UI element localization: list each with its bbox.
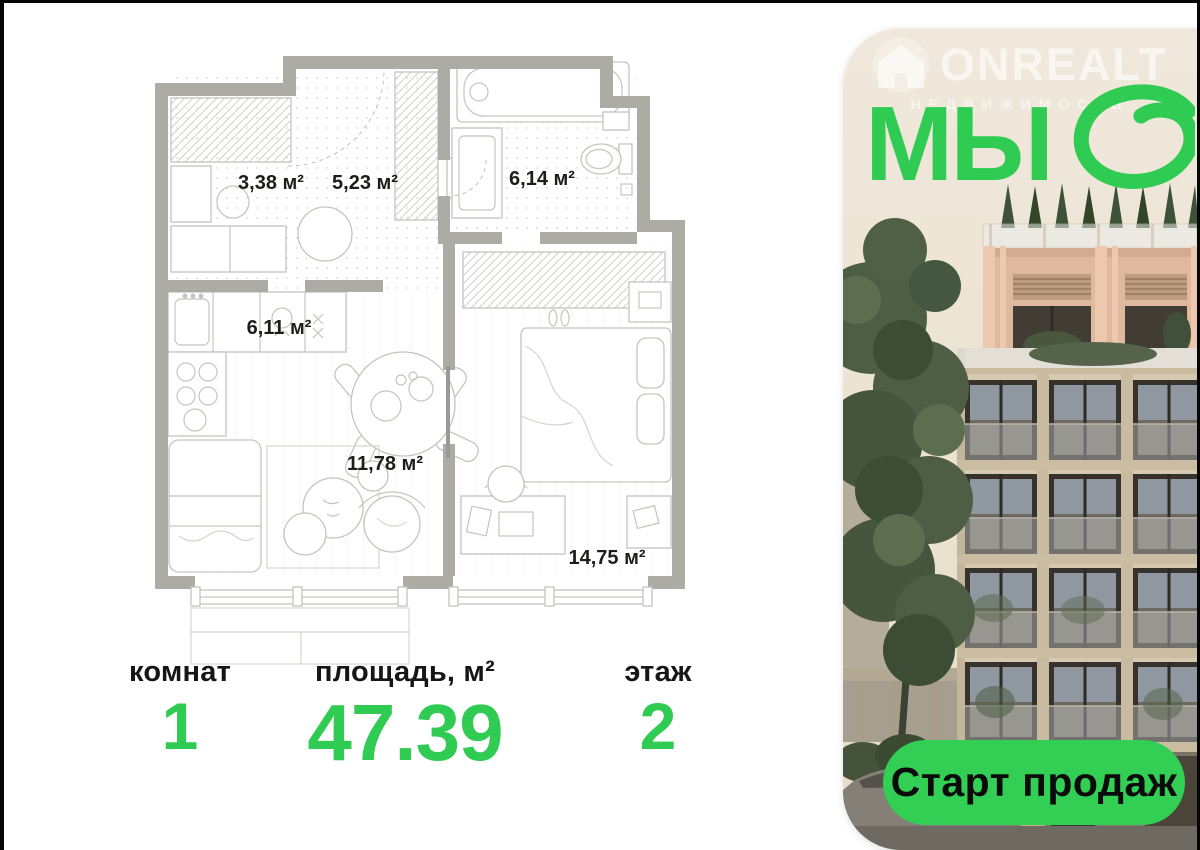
logo-letter-c-swoosh-icon bbox=[1077, 87, 1195, 187]
stats-row: комнат 1 площадь, м² 47.39 этаж 2 bbox=[0, 656, 843, 806]
corner-table bbox=[627, 496, 671, 548]
floor-stat: этаж 2 bbox=[588, 656, 728, 758]
area-stat: площадь, м² 47.39 bbox=[268, 656, 542, 771]
frame-border-left bbox=[0, 0, 4, 850]
stove bbox=[168, 352, 226, 436]
area-stat-value: 47.39 bbox=[268, 695, 542, 771]
start-sales-button[interactable]: Старт продаж bbox=[883, 740, 1185, 825]
project-logo: МЫ bbox=[865, 80, 1195, 210]
bed bbox=[521, 310, 671, 482]
floorplan: 3,38 м² 5,23 м² 6,14 м² 6,11 м² 11,78 м²… bbox=[155, 56, 685, 668]
room-area-label: 6,11 м² bbox=[247, 317, 312, 339]
area-stat-label: площадь, м² bbox=[268, 656, 542, 689]
rooms-stat-label: комнат bbox=[110, 656, 250, 689]
room-area-label: 11,78 м² bbox=[347, 453, 423, 475]
bathroom-vanity bbox=[452, 128, 502, 218]
promo-card: ONREALT НЕДВИЖИМОСТЬ МЫ Старт продаж bbox=[843, 28, 1197, 850]
sofa bbox=[169, 440, 261, 572]
room-area-label: 14,75 м² bbox=[568, 547, 645, 569]
bedroom-window bbox=[449, 587, 652, 606]
logo-letters: МЫ bbox=[865, 85, 1051, 203]
floor-stat-label: этаж bbox=[588, 656, 728, 689]
bedside-table bbox=[629, 282, 671, 322]
living-window bbox=[191, 587, 407, 606]
room-area-label: 5,23 м² bbox=[332, 172, 398, 194]
rooms-stat-value: 1 bbox=[110, 695, 250, 758]
rooms-stat: комнат 1 bbox=[110, 656, 250, 758]
listing-image: 3,38 м² 5,23 м² 6,14 м² 6,11 м² 11,78 м²… bbox=[0, 0, 1200, 850]
room-area-label: 6,14 м² bbox=[509, 168, 575, 190]
sliding-door bbox=[446, 366, 450, 458]
wall-niche bbox=[603, 112, 629, 130]
floor-stat-value: 2 bbox=[588, 695, 728, 758]
room-area-label: 3,38 м² bbox=[238, 172, 304, 194]
frame-border-top bbox=[0, 0, 1200, 3]
